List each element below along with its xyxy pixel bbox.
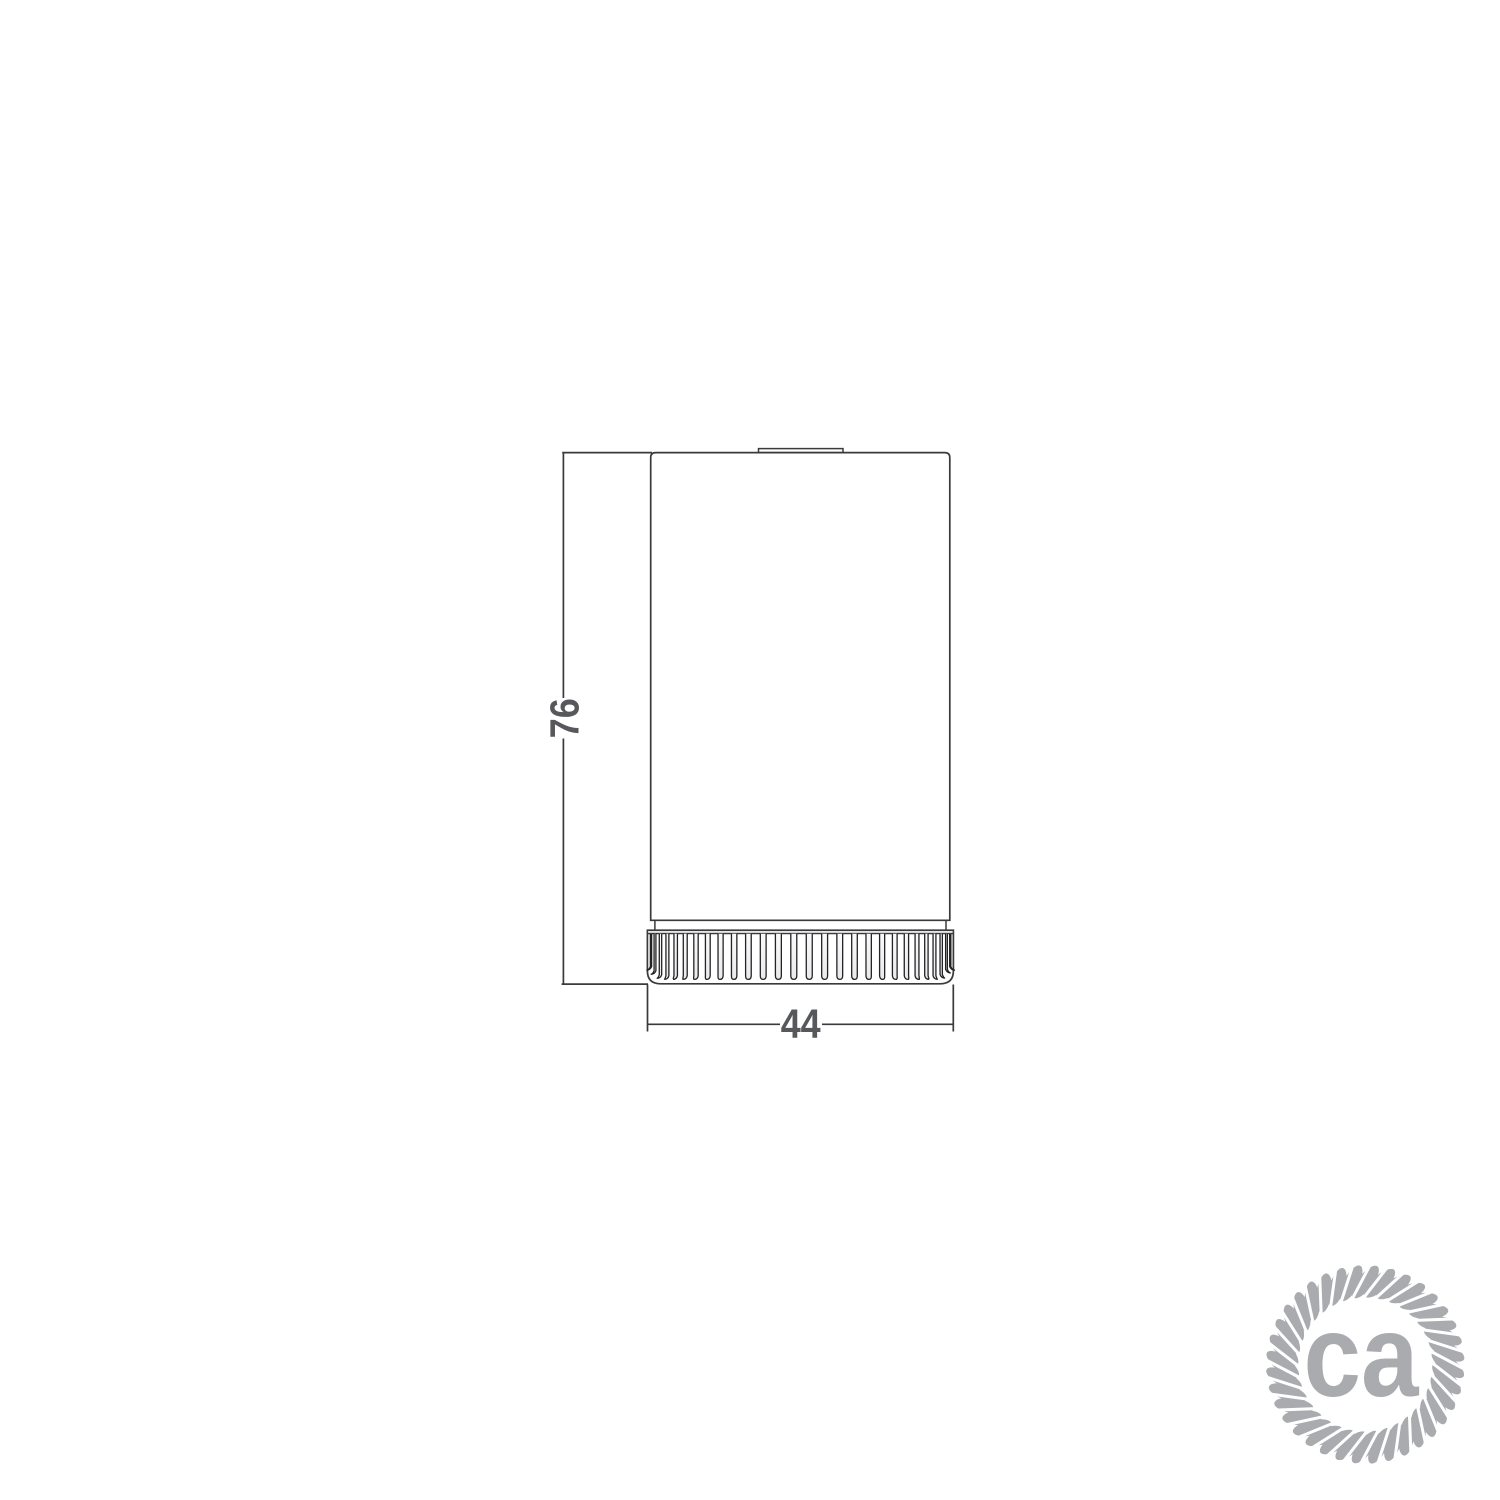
svg-text:44: 44 (781, 1000, 821, 1046)
svg-text:76: 76 (541, 698, 587, 738)
svg-text:ca: ca (1304, 1291, 1420, 1421)
